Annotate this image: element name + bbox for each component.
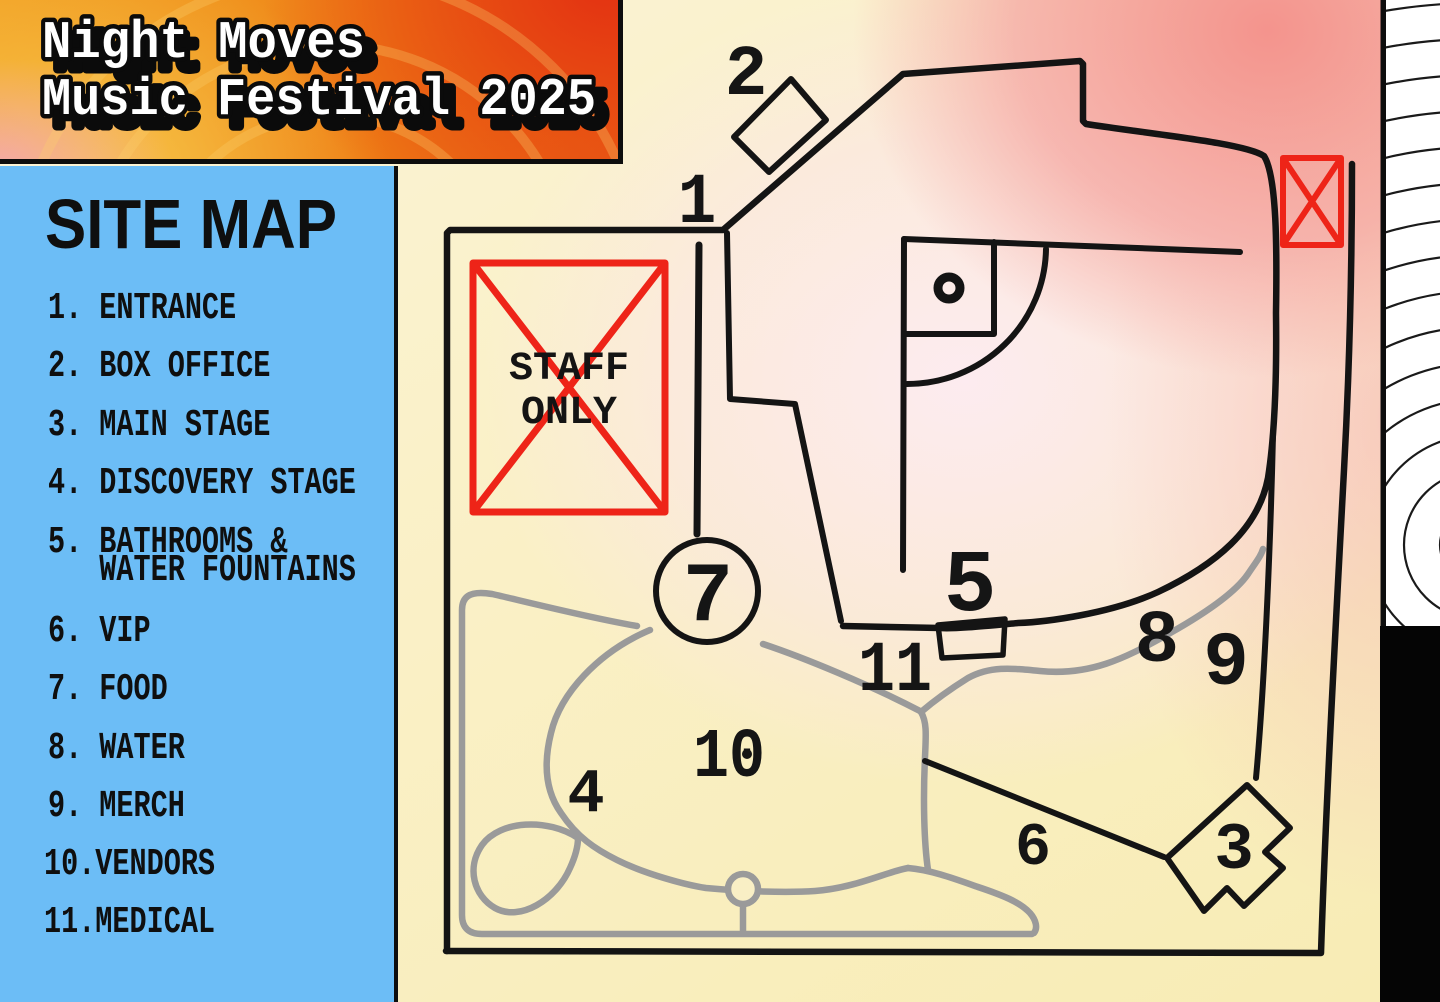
svg-text:Music Festival 2025: Music Festival 2025: [42, 70, 596, 130]
svg-text:STAFF: STAFF: [509, 347, 629, 392]
svg-text:6: 6: [1015, 815, 1051, 883]
svg-text:4: 4: [567, 759, 604, 830]
svg-text:3: 3: [1214, 813, 1254, 888]
svg-text:Night Moves: Night Moves: [42, 13, 365, 73]
svg-text:8: 8: [1135, 600, 1179, 684]
svg-text:1: 1: [678, 164, 716, 244]
svg-text:7: 7: [683, 551, 733, 646]
svg-text:9: 9: [1203, 621, 1249, 707]
svg-text:ONLY: ONLY: [521, 391, 617, 436]
svg-text:11: 11: [858, 632, 932, 712]
svg-text:10: 10: [693, 719, 765, 798]
svg-text:2: 2: [725, 36, 768, 116]
svg-text:5: 5: [944, 538, 997, 637]
svg-text:SITE MAP: SITE MAP: [45, 185, 337, 263]
